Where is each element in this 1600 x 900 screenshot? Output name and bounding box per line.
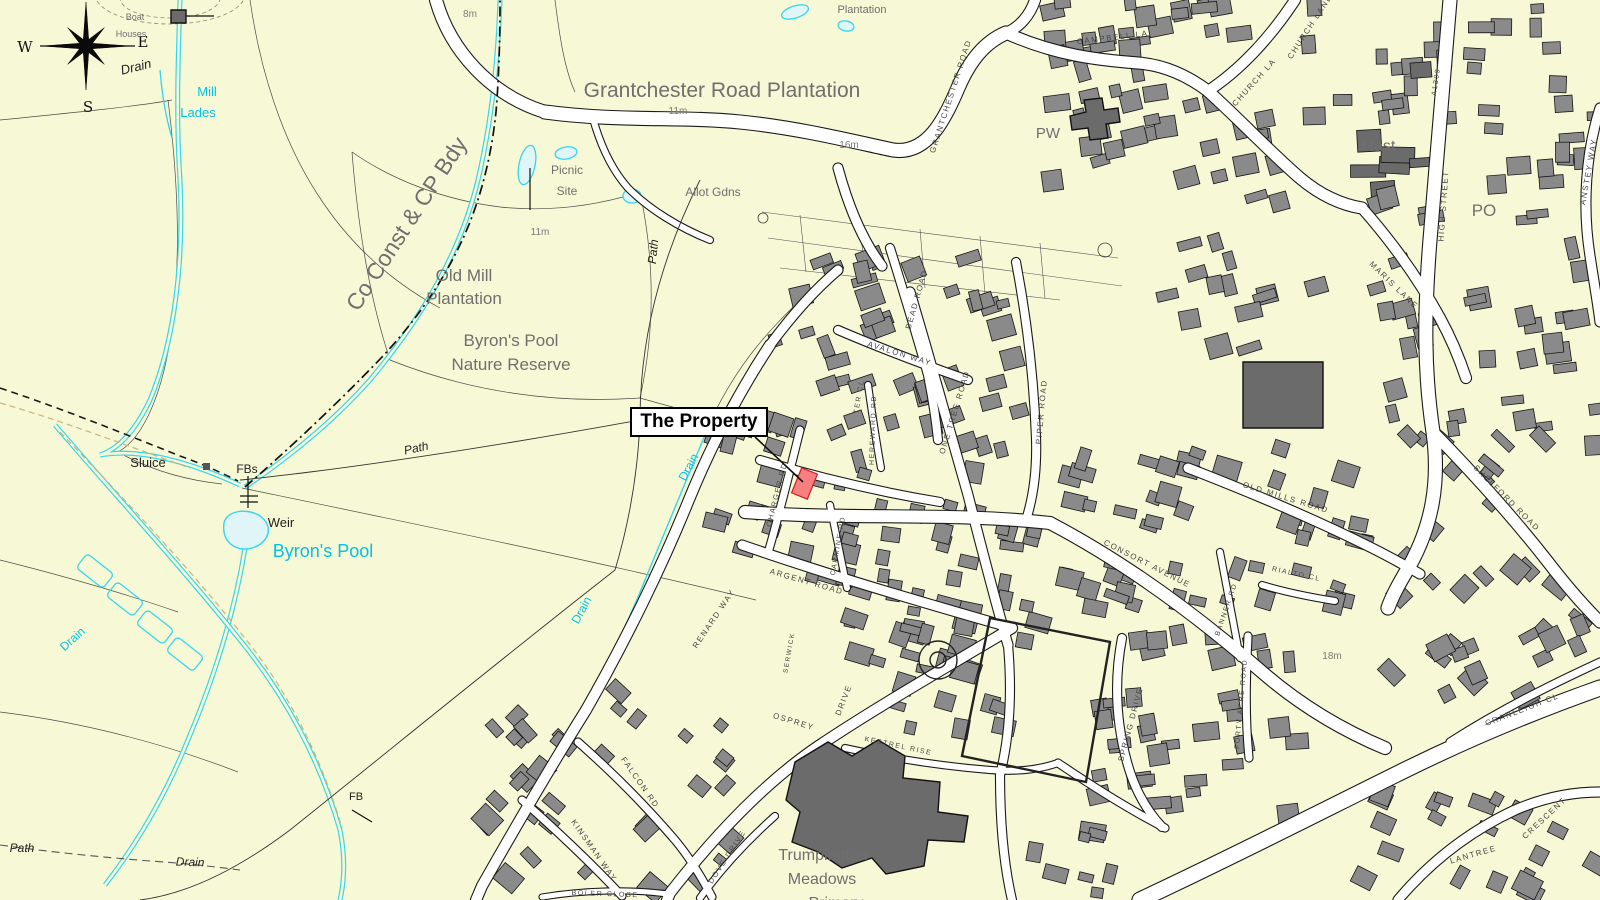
small-label: FBs [236, 462, 257, 476]
water-label: Mill [197, 84, 217, 99]
building [1091, 887, 1104, 899]
building [1517, 348, 1538, 369]
area-label: PW [1036, 125, 1061, 142]
building [1447, 420, 1460, 437]
building [1463, 48, 1485, 61]
building [1206, 275, 1224, 295]
area-label: Plantation [426, 289, 502, 308]
building [1468, 22, 1494, 33]
building [1554, 95, 1573, 112]
small-label: Drain [176, 855, 205, 870]
building [1124, 0, 1137, 11]
building [1377, 301, 1395, 321]
building [1053, 0, 1070, 9]
building [1171, 7, 1189, 19]
small-label: FB [349, 791, 363, 803]
area-label: Old Mill [436, 266, 493, 285]
building [1584, 435, 1600, 456]
building [1091, 768, 1107, 782]
building [1191, 1, 1218, 14]
building [881, 526, 901, 543]
area-label: Nature Reserve [451, 355, 570, 374]
building [907, 606, 920, 616]
area-label: Meadows [788, 871, 856, 888]
height-label: 16m [839, 140, 858, 151]
building [1549, 76, 1567, 93]
property-callout: The Property [630, 407, 768, 437]
building [1467, 62, 1482, 74]
building [1513, 409, 1537, 431]
small-label: Sluice [130, 455, 165, 470]
building [1303, 107, 1326, 125]
boat-house [171, 10, 186, 23]
area-label: Picnic [551, 163, 583, 177]
weir-pool [224, 511, 269, 549]
building [1142, 84, 1168, 103]
area-label: Site [557, 184, 578, 198]
building [1026, 842, 1043, 863]
building [1169, 624, 1187, 646]
large-building [1243, 362, 1323, 428]
building [1376, 49, 1387, 64]
building [1295, 529, 1311, 546]
area-label: PO [1472, 201, 1497, 220]
area-label: Grantchester Road Plantation [584, 79, 861, 102]
building [1015, 632, 1034, 650]
map-canvas: WESGrantchester Road PlantationPlantatio… [0, 0, 1600, 900]
small-label: Weir [268, 515, 295, 530]
compass-letter: S [83, 98, 93, 116]
area-label: Primary [808, 895, 863, 900]
building [876, 549, 891, 566]
building [1501, 395, 1524, 406]
building [1409, 157, 1430, 167]
building [1146, 631, 1167, 650]
building [1192, 722, 1220, 742]
building [1376, 185, 1399, 209]
building [1378, 110, 1390, 125]
height-label: 18m [1322, 651, 1341, 662]
building [1515, 305, 1536, 327]
small-label: Path [645, 238, 661, 264]
building [1542, 42, 1560, 55]
building [1232, 153, 1259, 177]
building [1542, 332, 1564, 354]
water-label: Byron's Pool [273, 541, 374, 561]
building [1588, 403, 1600, 416]
building [1200, 139, 1220, 157]
building [1184, 774, 1207, 787]
area-label: Mast [1361, 138, 1396, 155]
water-label: Lades [180, 105, 216, 120]
building [1410, 62, 1432, 79]
building [1268, 717, 1291, 739]
building [1530, 18, 1542, 37]
building [1382, 98, 1404, 111]
small-label: Path [10, 841, 35, 855]
compass-letter: W [17, 38, 33, 56]
building [1078, 831, 1090, 842]
road [1246, 636, 1249, 758]
area-label: Allot Gdns [685, 185, 740, 199]
building [1506, 156, 1531, 175]
height-label: 11m [531, 227, 550, 238]
building [1041, 169, 1064, 192]
sluice-mark [203, 463, 210, 470]
height-label: 8m [463, 9, 477, 20]
building [1555, 142, 1569, 162]
building [1526, 209, 1548, 219]
building [1484, 123, 1503, 135]
building [1147, 743, 1170, 767]
building [1537, 159, 1554, 177]
building [1333, 94, 1352, 105]
building [1019, 599, 1034, 612]
area-label: Houses [116, 29, 147, 39]
area-label: Boat [126, 12, 145, 22]
building [946, 570, 962, 587]
building [1222, 758, 1243, 770]
building [1255, 109, 1276, 129]
building [1531, 4, 1544, 14]
building [1109, 84, 1122, 98]
area-label: Trumpington [778, 847, 867, 864]
building [1404, 76, 1417, 96]
height-label: 11m [669, 106, 688, 117]
building [1226, 25, 1252, 42]
building [1487, 174, 1507, 194]
building [877, 568, 890, 583]
building [1139, 713, 1158, 736]
building [1118, 89, 1142, 114]
building [1103, 139, 1125, 160]
building [1186, 787, 1201, 797]
building [1479, 350, 1496, 368]
area-label: Byron's Pool [464, 331, 559, 350]
building [904, 720, 917, 735]
building [1478, 104, 1499, 116]
building [1083, 499, 1097, 512]
building [1043, 94, 1071, 113]
building [1134, 5, 1157, 28]
building [1283, 651, 1296, 673]
building [1178, 308, 1201, 330]
area-label: Plantation [838, 4, 887, 16]
map-screenshot: WESGrantchester Road PlantationPlantatio… [0, 0, 1600, 900]
building [1204, 23, 1219, 37]
